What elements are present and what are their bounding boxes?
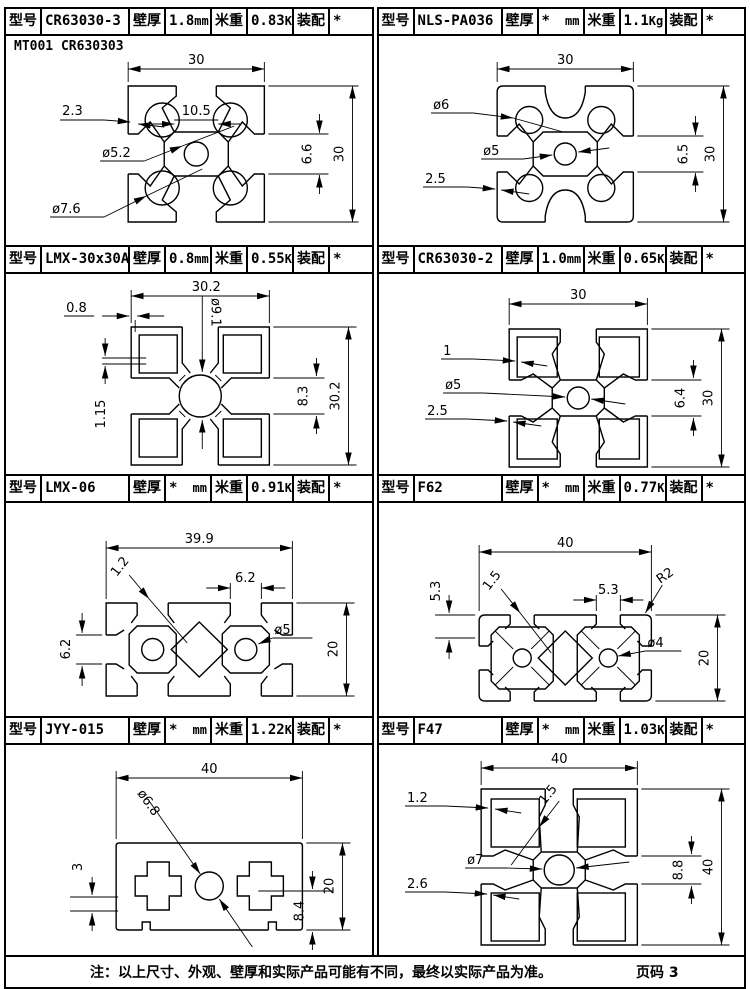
dim-width: 30	[569, 288, 586, 303]
dimensions: 40 1.2 1.5 ø7 2.6	[405, 752, 729, 945]
wall-value: *mm	[166, 718, 212, 743]
cad-drawing-f62: 40 5.3 1.5 5.3 R2 ø4	[379, 503, 745, 716]
model-value: LMX-06	[42, 476, 130, 501]
profile-drawing: 40 5.3 1.5 5.3 R2 ø4	[379, 503, 745, 716]
wall-label: 壁厚	[503, 9, 539, 34]
spec-header: 型号 LMX-30x30A 壁厚 0.8mm 米重 0.55Kg 装配 *	[6, 247, 372, 274]
dim-wall: 1.5	[480, 568, 505, 594]
page-footer: 注：以上尺寸、外观、壁厚和实际产品可能有不同，最终以实际产品为准。 页码 3	[4, 955, 746, 989]
weight-value: 0.65Kg	[621, 247, 667, 272]
profile-drawing: 40 1.2 1.5 ø7 2.6	[379, 745, 745, 955]
assembly-label: 装配	[667, 476, 703, 501]
model-label: 型号	[6, 247, 42, 272]
profile-drawing: 39.9 1.2 6.2 6.2 ø5	[6, 503, 372, 716]
dim-height: 30	[701, 390, 716, 407]
profile-outline	[509, 329, 647, 467]
dim-width: 30	[556, 53, 573, 68]
dim-center-hole: ø4	[647, 636, 663, 651]
weight-label: 米重	[585, 247, 621, 272]
dim-step: 1.15	[94, 400, 109, 429]
dim-height: 20	[322, 878, 337, 895]
dim-height: 30.2	[328, 382, 343, 411]
model-value: CR63030-3	[42, 9, 130, 34]
dim-slot-height: 8.8	[671, 860, 686, 881]
profile-drawing: MT001 CR630303	[6, 36, 372, 245]
dim-height: 30	[703, 146, 718, 163]
profile-cell-f47: 型号 F47 壁厚 *mm 米重 1.03Kg 装配 *	[377, 716, 747, 957]
profile-outline	[479, 615, 651, 701]
spec-header: 型号 F62 壁厚 *mm 米重 0.77Kg 装配 *	[379, 476, 745, 503]
wall-label: 壁厚	[130, 9, 166, 34]
dim-slot-top: 6.2	[235, 571, 256, 586]
dim-corner-hole: ø7.6	[52, 202, 81, 217]
assembly-label: 装配	[667, 247, 703, 272]
dim-width: 40	[550, 752, 567, 767]
wall-value: *mm	[166, 476, 212, 501]
dim-slot-height: 8.3	[296, 386, 311, 407]
wall-label: 壁厚	[503, 718, 539, 743]
dim-width: 40	[201, 762, 218, 777]
profile-cell-cr63030-2: 型号 CR63030-2 壁厚 1.0mm 米重 0.65Kg 装配 *	[377, 245, 747, 476]
assembly-label: 装配	[667, 9, 703, 34]
mold-note: MT001 CR630303	[14, 39, 124, 54]
dim-height: 20	[697, 650, 712, 667]
dim-wall: 1.2	[407, 791, 428, 806]
profile-drawing: 40 ø6.8 3 8.4 20	[6, 745, 372, 955]
weight-value: 1.1Kg	[621, 9, 667, 34]
weight-label: 米重	[212, 9, 248, 34]
profile-cell-lmx-30x30a: 型号 LMX-30x30A 壁厚 0.8mm 米重 0.55Kg 装配 *	[4, 245, 374, 476]
wall-label: 壁厚	[130, 247, 166, 272]
dim-wall2: 2.5	[427, 404, 448, 419]
wall-value: 1.0mm	[539, 247, 585, 272]
model-value: F62	[415, 476, 503, 501]
wall-label: 壁厚	[130, 476, 166, 501]
weight-value: 0.91Kg	[248, 476, 294, 501]
dim-slot-side: 6.2	[59, 639, 74, 660]
dim-center-hole: ø5	[445, 378, 461, 393]
catalog-page: 型号 CR63030-3 壁厚 1.8mm 米重 0.83Kg 装配 * MT0…	[0, 0, 750, 985]
dim-center-hole: ø7	[467, 853, 483, 868]
row-3: 型号 LMX-06 壁厚 *mm 米重 0.91Kg 装配 *	[4, 474, 746, 718]
weight-value: 0.77Kg	[621, 476, 667, 501]
model-label: 型号	[6, 9, 42, 34]
dim-slot-height: 6.5	[676, 144, 691, 165]
profile-drawing: 30 30 6.5 ø6 ø5	[379, 36, 745, 245]
dim-slot: 10.5	[182, 104, 211, 119]
cad-drawing-nls-pa036: 30 30 6.5 ø6 ø5	[379, 36, 745, 245]
weight-label: 米重	[585, 9, 621, 34]
profile-outline	[106, 603, 292, 696]
assembly-label: 装配	[294, 718, 330, 743]
model-label: 型号	[379, 476, 415, 501]
spec-header: 型号 JYY-015 壁厚 *mm 米重 1.22Kg 装配 *	[6, 718, 372, 745]
dim-slot-top: 5.3	[597, 583, 618, 598]
dim-center-hole: ø5	[274, 623, 290, 638]
wall-label: 壁厚	[130, 718, 166, 743]
wall-value: *mm	[539, 718, 585, 743]
model-value: JYY-015	[42, 718, 130, 743]
assembly-value: *	[703, 718, 745, 743]
profile-cell-f62: 型号 F62 壁厚 *mm 米重 0.77Kg 装配 *	[377, 474, 747, 718]
dim-slot-height: 8.4	[292, 901, 307, 922]
dimensions: 30 30 6.5 ø6 ø5	[423, 53, 729, 222]
weight-value: 0.55Kg	[248, 247, 294, 272]
dimensions: 39.9 1.2 6.2 6.2 ø5	[59, 532, 354, 696]
profile-outline	[481, 789, 637, 945]
dim-width: 40	[556, 536, 573, 551]
dim-width: 30.2	[192, 280, 221, 295]
row-2: 型号 LMX-30x30A 壁厚 0.8mm 米重 0.55Kg 装配 *	[4, 245, 746, 476]
weight-value: 1.22Kg	[248, 718, 294, 743]
assembly-label: 装配	[294, 476, 330, 501]
profile-outline	[131, 327, 269, 465]
footer-note: 注：以上尺寸、外观、壁厚和实际产品可能有不同，最终以实际产品为准。	[6, 962, 636, 982]
dimensions: 30 30 6.6 2.3 10.5	[50, 53, 358, 222]
dim-center-hole: ø9.1	[207, 298, 222, 327]
profile-outline	[497, 86, 633, 222]
spec-header: 型号 CR63030-2 壁厚 1.0mm 米重 0.65Kg 装配 *	[379, 247, 745, 274]
weight-label: 米重	[212, 718, 248, 743]
dim-center-hole: ø5	[483, 144, 499, 159]
dim-wall: 2.3	[62, 104, 83, 119]
model-label: 型号	[379, 718, 415, 743]
cad-drawing-cr63030-2: 30 1 ø5 2.5	[379, 274, 745, 474]
dim-height: 30	[332, 146, 347, 163]
dim-side: 5.3	[429, 581, 444, 602]
dimensions: 40 ø6.8 3 8.4 20	[70, 762, 350, 950]
wall-value: *mm	[539, 9, 585, 34]
cad-drawing-f47: 40 1.2 1.5 ø7 2.6	[379, 745, 745, 955]
dim-wall2: 2.6	[407, 877, 428, 892]
dim-slot-height: 6.4	[673, 388, 688, 409]
dim-height: 20	[326, 641, 341, 658]
profile-cell-lmx-06: 型号 LMX-06 壁厚 *mm 米重 0.91Kg 装配 *	[4, 474, 374, 718]
profile-drawing: 30.2 0.8 ø9.1 1.15	[6, 274, 372, 474]
assembly-value: *	[330, 476, 372, 501]
profile-drawing: 30 1 ø5 2.5	[379, 274, 745, 474]
dim-slot-height: 6.6	[300, 144, 315, 165]
dim-corner-hole: ø6	[433, 98, 449, 113]
dim-step: 3	[71, 863, 86, 871]
spec-header: 型号 CR63030-3 壁厚 1.8mm 米重 0.83Kg 装配 *	[6, 9, 372, 36]
weight-label: 米重	[585, 476, 621, 501]
assembly-value: *	[330, 9, 372, 34]
profile-cell-cr63030-3: 型号 CR63030-3 壁厚 1.8mm 米重 0.83Kg 装配 * MT0…	[4, 7, 374, 247]
weight-value: 0.83Kg	[248, 9, 294, 34]
assembly-label: 装配	[667, 718, 703, 743]
weight-label: 米重	[212, 247, 248, 272]
dim-wall: 1.2	[108, 554, 133, 580]
cad-drawing-jyy-015: 40 ø6.8 3 8.4 20	[6, 745, 372, 955]
profile-cell-jyy-015: 型号 JYY-015 壁厚 *mm 米重 1.22Kg 装配 *	[4, 716, 374, 957]
page-number: 页码 3	[636, 962, 744, 982]
spec-header: 型号 NLS-PA036 壁厚 *mm 米重 1.1Kg 装配 *	[379, 9, 745, 36]
model-label: 型号	[6, 718, 42, 743]
assembly-value: *	[703, 247, 745, 272]
model-value: LMX-30x30A	[42, 247, 130, 272]
assembly-value: *	[330, 718, 372, 743]
dim-wall: 1	[443, 344, 451, 359]
spec-header: 型号 LMX-06 壁厚 *mm 米重 0.91Kg 装配 *	[6, 476, 372, 503]
dim-wall: 0.8	[66, 301, 87, 316]
assembly-value: *	[330, 247, 372, 272]
model-value: F47	[415, 718, 503, 743]
dim-radius: R2	[653, 565, 676, 587]
model-value: CR63030-2	[415, 247, 503, 272]
dim-height: 40	[701, 859, 716, 876]
assembly-label: 装配	[294, 9, 330, 34]
weight-value: 1.03Kg	[621, 718, 667, 743]
profile-cell-nls-pa036: 型号 NLS-PA036 壁厚 *mm 米重 1.1Kg 装配 *	[377, 7, 747, 247]
dimensions: 30 1 ø5 2.5	[425, 288, 729, 467]
cad-drawing-lmx-30x30a: 30.2 0.8 ø9.1 1.15	[6, 274, 372, 474]
assembly-value: *	[703, 476, 745, 501]
profile-outline	[116, 843, 302, 930]
model-label: 型号	[379, 9, 415, 34]
spec-header: 型号 F47 壁厚 *mm 米重 1.03Kg 装配 *	[379, 718, 745, 745]
row-1: 型号 CR63030-3 壁厚 1.8mm 米重 0.83Kg 装配 * MT0…	[4, 7, 746, 247]
dim-center-hole: ø5.2	[102, 146, 131, 161]
wall-value: 1.8mm	[166, 9, 212, 34]
wall-label: 壁厚	[503, 476, 539, 501]
model-label: 型号	[6, 476, 42, 501]
assembly-value: *	[703, 9, 745, 34]
row-4: 型号 JYY-015 壁厚 *mm 米重 1.22Kg 装配 *	[4, 716, 746, 957]
wall-value: *mm	[539, 476, 585, 501]
model-value: NLS-PA036	[415, 9, 503, 34]
model-label: 型号	[379, 247, 415, 272]
cad-drawing-cr63030-3: 30 30 6.6 2.3 10.5	[6, 36, 372, 245]
dim-width: 30	[188, 53, 205, 68]
wall-value: 0.8mm	[166, 247, 212, 272]
wall-label: 壁厚	[503, 247, 539, 272]
dim-wall: 2.5	[425, 172, 446, 187]
assembly-label: 装配	[294, 247, 330, 272]
weight-label: 米重	[585, 718, 621, 743]
weight-label: 米重	[212, 476, 248, 501]
dim-width: 39.9	[185, 532, 214, 547]
cad-drawing-lmx-06: 39.9 1.2 6.2 6.2 ø5	[6, 503, 372, 716]
